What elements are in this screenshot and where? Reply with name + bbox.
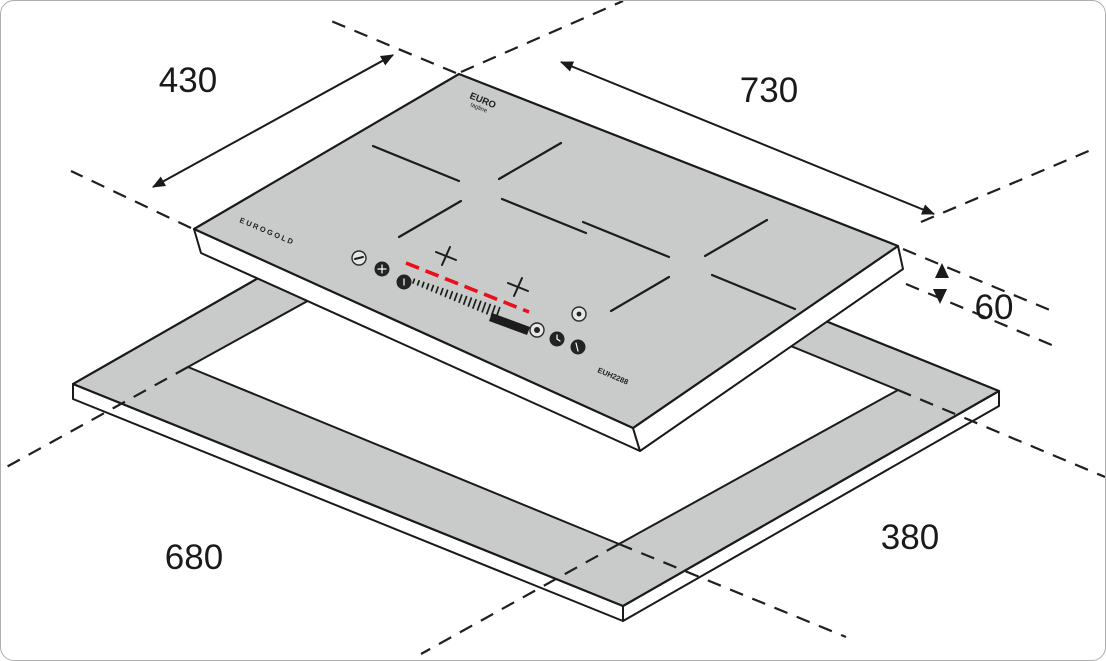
installation-diagram: EURO tagline EUROGOLD EUH2288 430 730 60…: [1, 1, 1105, 660]
witness-line-730-tail: [461, 1, 623, 72]
dimension-label-380: 380: [881, 518, 939, 557]
witness-line-730-head: [921, 150, 1091, 222]
witness-line-430-head: [331, 21, 456, 73]
dimension-label-60: 60: [975, 288, 1014, 327]
dimension-label-430: 430: [159, 61, 217, 100]
witness-line-430-tail: [71, 171, 191, 228]
power-icon-dot: [577, 312, 582, 317]
boost-icon: [571, 340, 585, 354]
dimension-label-680: 680: [165, 538, 223, 577]
select-icon-dot: [534, 327, 540, 333]
dimension-label-730: 730: [740, 71, 798, 110]
page-frame: EURO tagline EUROGOLD EUH2288 430 730 60…: [0, 0, 1106, 661]
dimension-arrow-60: [933, 263, 949, 304]
